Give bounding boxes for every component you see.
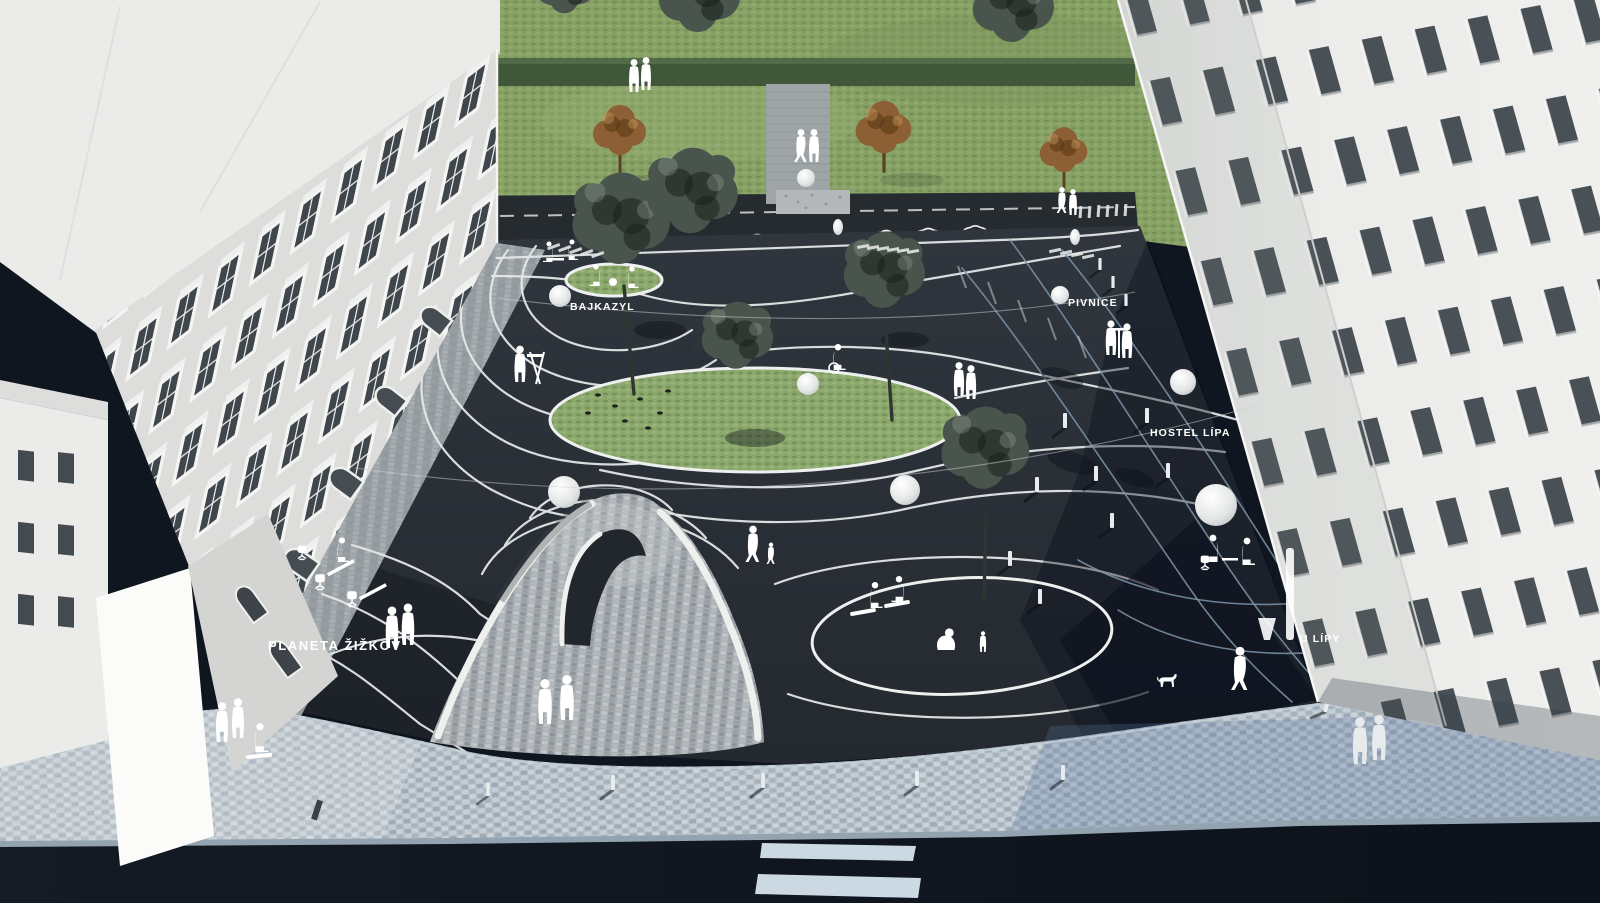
sphere-lamp — [1051, 286, 1069, 304]
low-building — [0, 398, 108, 768]
gravel-patch — [776, 190, 850, 214]
egg-lamp — [833, 219, 843, 235]
crosswalk-stripe — [760, 843, 916, 861]
sphere-lamp — [890, 475, 920, 505]
label-planeta-zizkov: PLANETA ŽIŽKOV — [268, 638, 402, 653]
sphere-lamp — [1170, 369, 1196, 395]
architectural-rendering-public-square: PLANETA ŽIŽKOV BAJKAZYL PIVNICE HOSTEL L… — [0, 0, 1600, 903]
crosswalk-stripe — [755, 874, 921, 898]
sphere-lamp — [548, 476, 580, 508]
tall-post — [1286, 548, 1294, 640]
sphere-lamp — [1195, 484, 1237, 526]
egg-lamp — [1070, 229, 1080, 245]
sphere-lamp — [797, 169, 815, 187]
label-bajkazyl: BAJKAZYL — [570, 301, 635, 313]
label-pivnice: PIVNICE — [1068, 297, 1118, 309]
scene-rendering: PLANETA ŽIŽKOV BAJKAZYL PIVNICE HOSTEL L… — [0, 0, 1600, 903]
label-hostel-lipa: HOSTEL LÍPA — [1150, 426, 1231, 439]
label-u-lipy: U LÍPY — [1300, 632, 1340, 645]
sphere-lamp — [797, 373, 819, 395]
central-lawn-oval — [550, 368, 960, 472]
